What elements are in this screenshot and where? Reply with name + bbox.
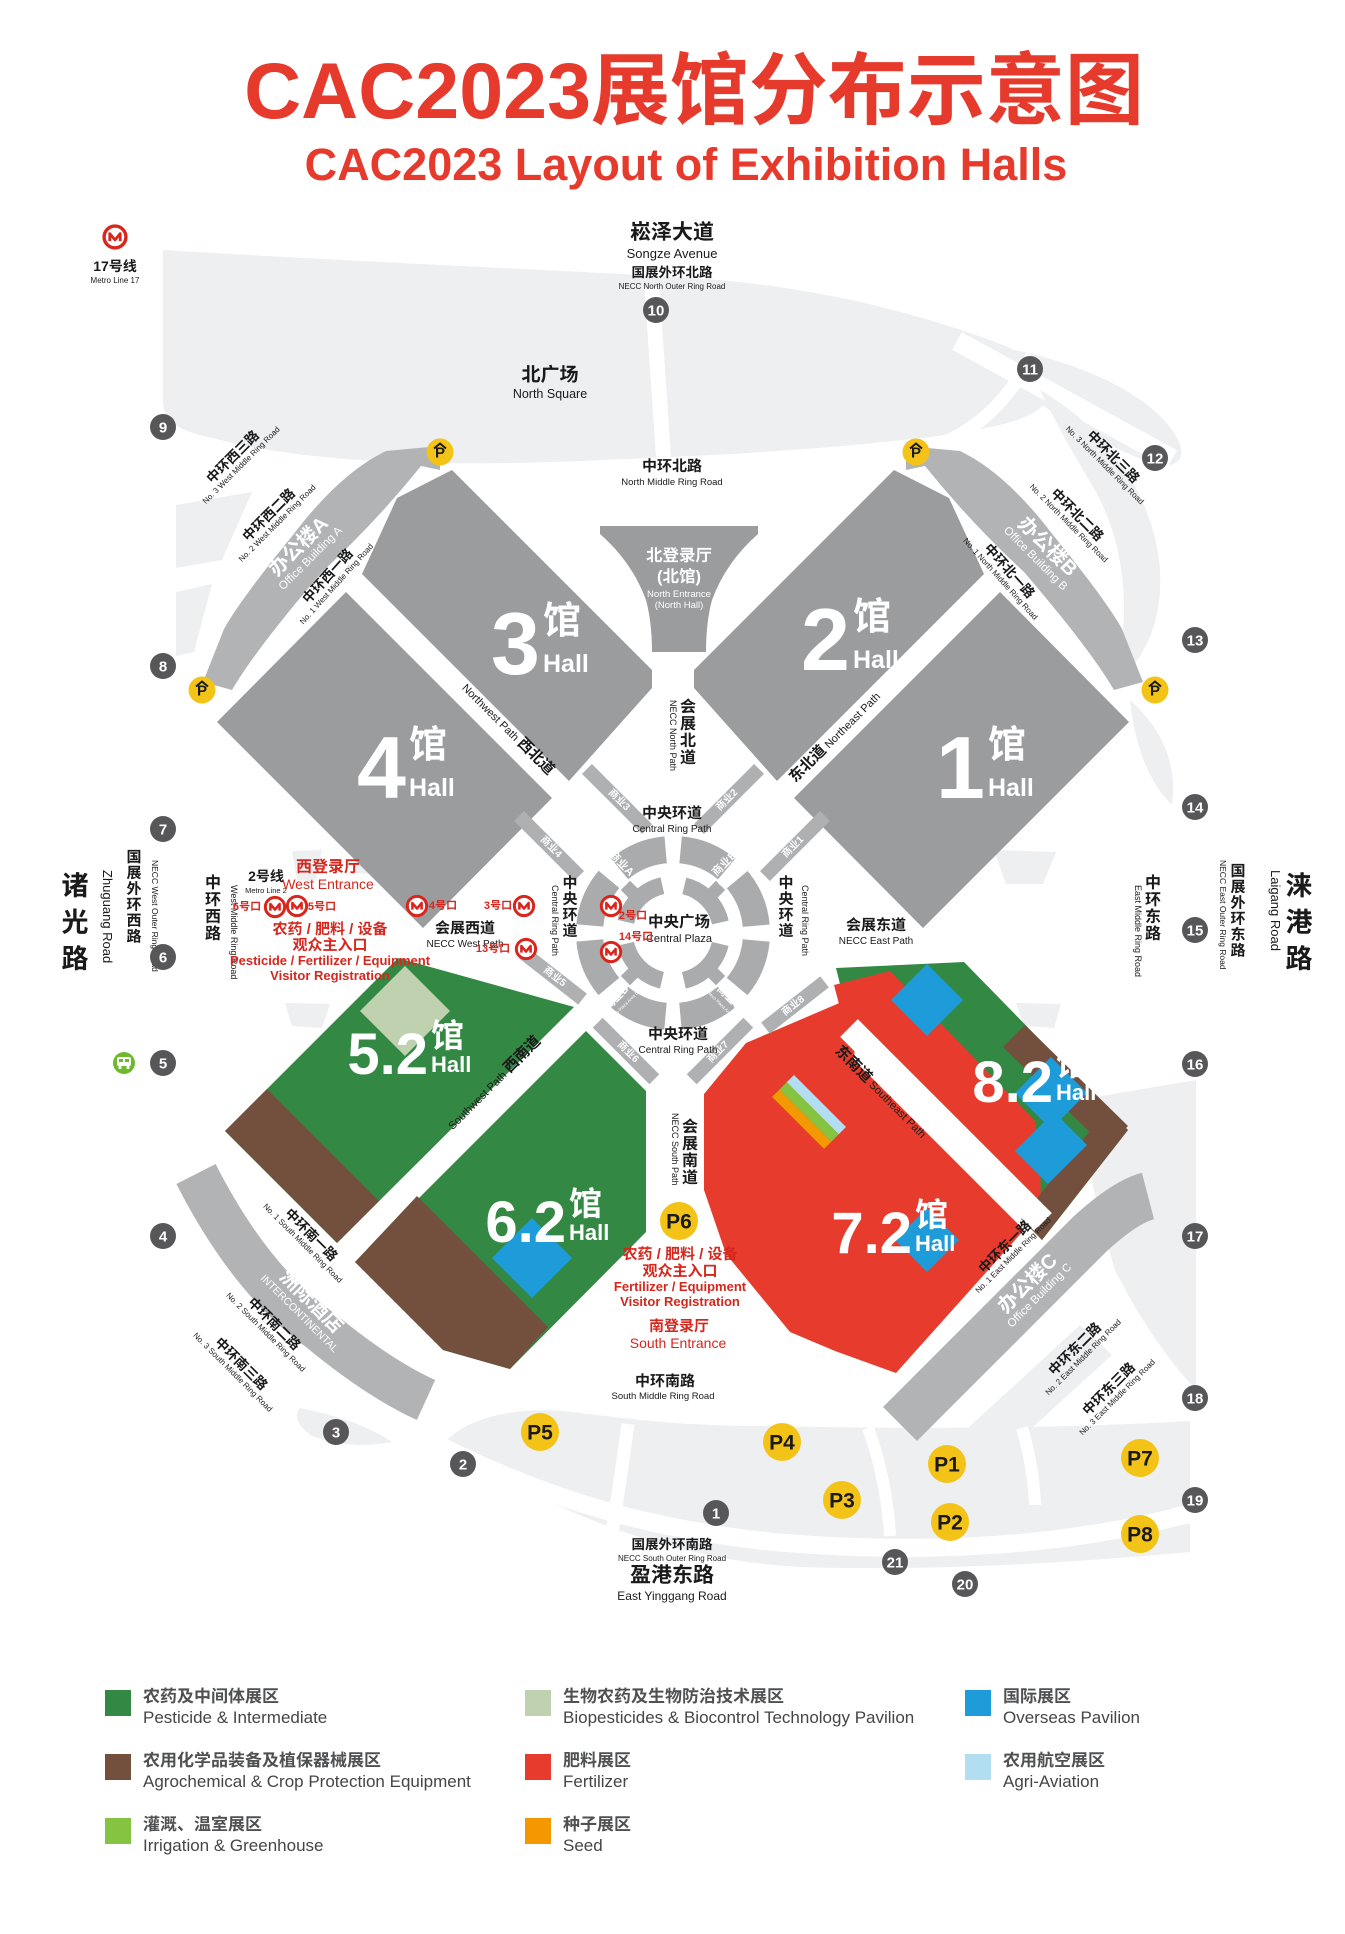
svg-text:16: 16	[1187, 1057, 1204, 1074]
svg-text:East Yinggang Road: East Yinggang Road	[617, 1589, 726, 1603]
svg-text:North Entrance: North Entrance	[647, 589, 711, 600]
svg-text:Hall: Hall	[569, 1220, 609, 1245]
svg-text:Fertilizer: Fertilizer	[563, 1772, 629, 1791]
svg-text:Hall: Hall	[431, 1052, 471, 1077]
svg-text:/: /	[345, 921, 358, 938]
svg-text:/: /	[303, 921, 316, 938]
svg-text:3: 3	[484, 900, 490, 912]
svg-text:Hall: Hall	[1056, 1080, 1096, 1105]
svg-text:NECC South Outer Ring Road: NECC South Outer Ring Road	[618, 1554, 726, 1563]
svg-text:4: 4	[357, 718, 406, 817]
svg-text:2: 2	[248, 868, 256, 884]
svg-text:7: 7	[159, 822, 167, 839]
svg-text:CAC2023: CAC2023	[244, 46, 591, 135]
svg-text:11: 11	[1022, 362, 1038, 379]
svg-text:21: 21	[887, 1555, 904, 1572]
svg-text:14: 14	[619, 931, 632, 943]
svg-text:Metro Line 2: Metro Line 2	[245, 886, 287, 895]
svg-text:(North Hall): (North Hall)	[655, 600, 704, 611]
svg-text:12: 12	[1147, 451, 1164, 468]
svg-text:Central Ring Path: Central Ring Path	[550, 885, 560, 956]
svg-text:18: 18	[1187, 1391, 1204, 1408]
svg-text:North Middle Ring Road: North Middle Ring Road	[621, 477, 722, 488]
svg-text:CAC2023 Layout of Exhibition H: CAC2023 Layout of Exhibition Halls	[305, 139, 1068, 190]
svg-text:Irrigation & Greenhouse: Irrigation & Greenhouse	[143, 1836, 324, 1855]
svg-text:Biopesticides & Biocontrol Tec: Biopesticides & Biocontrol Technology Pa…	[563, 1708, 914, 1727]
svg-text:NECC East Path: NECC East Path	[839, 936, 913, 947]
svg-text:North Square: North Square	[513, 387, 587, 401]
svg-text:Laigang Road: Laigang Road	[1268, 870, 1283, 951]
svg-text:NECC North Path: NECC North Path	[668, 700, 678, 771]
svg-text:9: 9	[159, 420, 167, 437]
svg-text:8: 8	[159, 659, 167, 676]
svg-text:1: 1	[712, 1506, 720, 1523]
svg-text:4: 4	[429, 900, 436, 912]
svg-text:14: 14	[1187, 800, 1204, 817]
svg-text:Central Ring Path: Central Ring Path	[800, 885, 810, 956]
svg-text:P5: P5	[527, 1422, 553, 1445]
svg-text:13: 13	[1187, 633, 1204, 650]
svg-text:Zhuguang Road: Zhuguang Road	[100, 870, 115, 963]
svg-text:2: 2	[619, 910, 625, 922]
svg-text:17: 17	[93, 258, 109, 274]
svg-text:15: 15	[1187, 923, 1204, 940]
svg-text:/: /	[695, 1246, 708, 1263]
svg-text:Songze Avenue: Songze Avenue	[627, 246, 718, 261]
svg-text:17: 17	[1187, 1229, 1204, 1246]
svg-text:P1: P1	[934, 1454, 960, 1477]
svg-text:Visitor Registration: Visitor Registration	[270, 968, 390, 983]
svg-text:West Entrance: West Entrance	[282, 876, 374, 892]
svg-text:NECC North Outer Ring Road: NECC North Outer Ring Road	[619, 282, 726, 291]
svg-text:P2: P2	[937, 1512, 963, 1535]
svg-text:2: 2	[459, 1457, 467, 1474]
svg-text:4: 4	[159, 1229, 168, 1246]
svg-text:P8: P8	[1127, 1524, 1153, 1547]
svg-text:7.2: 7.2	[831, 1201, 912, 1266]
svg-text:NECC South Path: NECC South Path	[670, 1113, 680, 1186]
svg-text:5: 5	[308, 901, 314, 913]
svg-text:Pesticide & Intermediate: Pesticide & Intermediate	[143, 1708, 327, 1727]
svg-text:Hall: Hall	[915, 1231, 955, 1256]
svg-text:8.2: 8.2	[972, 1050, 1053, 1115]
svg-text:1: 1	[936, 718, 985, 817]
svg-text:NECC East Outer Ring Road: NECC East Outer Ring Road	[1218, 860, 1228, 970]
svg-text:P7: P7	[1127, 1448, 1153, 1471]
svg-text:P4: P4	[769, 1432, 795, 1455]
svg-text:Central Plaza: Central Plaza	[646, 933, 713, 945]
svg-text:19: 19	[1187, 1493, 1204, 1510]
svg-text:Hall: Hall	[853, 646, 899, 674]
svg-text:6.2: 6.2	[485, 1190, 566, 1255]
svg-text:10: 10	[648, 303, 665, 320]
svg-text:5: 5	[159, 1056, 167, 1073]
svg-text:South Entrance: South Entrance	[630, 1335, 727, 1351]
svg-text:South Middle Ring Road: South Middle Ring Road	[612, 1391, 715, 1402]
svg-text:Fertilizer / Equipment: Fertilizer / Equipment	[614, 1279, 747, 1294]
svg-text:Hall: Hall	[988, 774, 1034, 802]
svg-text:20: 20	[957, 1577, 974, 1594]
svg-text:Agrochemical & Crop Protection: Agrochemical & Crop Protection Equipment	[143, 1772, 471, 1791]
svg-text:5.2: 5.2	[347, 1022, 428, 1087]
svg-text:(: (	[657, 568, 663, 586]
svg-text:Agri-Aviation: Agri-Aviation	[1003, 1772, 1099, 1791]
svg-text:Hall: Hall	[409, 774, 455, 802]
svg-text:Visitor Registration: Visitor Registration	[620, 1294, 740, 1309]
svg-text:P6: P6	[666, 1211, 692, 1234]
svg-text:Central Ring Path: Central Ring Path	[639, 1045, 718, 1056]
svg-text:6: 6	[159, 950, 167, 967]
svg-text:Seed: Seed	[563, 1836, 603, 1855]
svg-text:2: 2	[801, 590, 850, 689]
svg-text:6: 6	[233, 901, 239, 913]
svg-text:Hall: Hall	[543, 650, 589, 678]
svg-text:Pesticide / Fertilizer / Equip: Pesticide / Fertilizer / Equipment	[230, 953, 431, 968]
svg-text:): )	[696, 568, 702, 586]
svg-text:3: 3	[491, 594, 540, 693]
svg-text:East Middle Ring Road: East Middle Ring Road	[1133, 885, 1143, 977]
svg-text:3: 3	[332, 1425, 340, 1442]
svg-text:13: 13	[476, 943, 488, 955]
svg-text:/: /	[653, 1246, 666, 1263]
svg-text:P3: P3	[829, 1490, 855, 1513]
svg-text:Central Ring Path: Central Ring Path	[633, 824, 712, 835]
svg-text:Metro Line 17: Metro Line 17	[91, 276, 140, 285]
svg-text:Overseas Pavilion: Overseas Pavilion	[1003, 1708, 1140, 1727]
